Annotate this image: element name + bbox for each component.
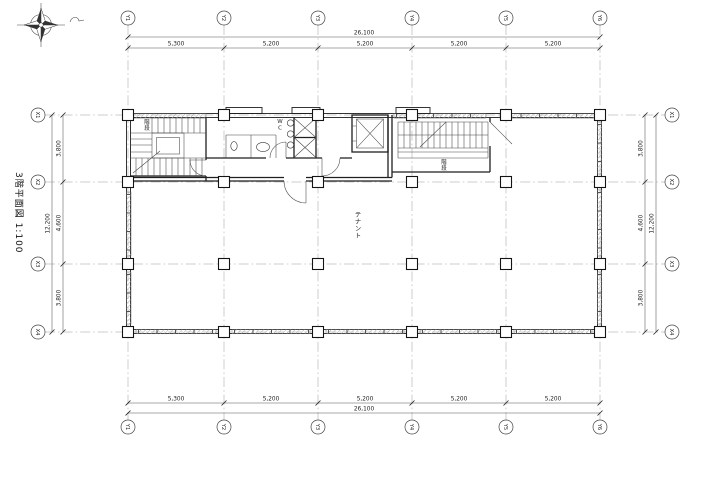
window-bands: [127, 114, 602, 334]
drawing-sheet: 3階平面図 1:100: [0, 0, 704, 500]
stair1-door: [190, 160, 206, 176]
north-compass-icon: [17, 3, 84, 47]
floor-plan-canvas: 3階平面図 1:100: [0, 0, 704, 500]
urinal-icon: [287, 120, 293, 126]
dim-top-total: 26,100: [354, 31, 375, 37]
structural-column: [407, 327, 418, 338]
grid-bubble-label: X4: [34, 329, 40, 337]
structural-column: [313, 110, 324, 121]
wc-door: [270, 142, 286, 158]
grid-bubble-label: Y1: [124, 14, 130, 21]
grid-bubble-label: Y3: [314, 14, 320, 21]
grid-bubble-label: Y4: [408, 423, 414, 431]
grid-bubble-label: Y4: [408, 14, 414, 22]
dim-bottom-total: 26,100: [354, 407, 375, 413]
grid-bubble-label: Y5: [502, 423, 508, 430]
grid-bubble-label: Y1: [124, 423, 130, 430]
grid-bubble-label: X2: [34, 179, 40, 186]
dim-right-segment: 3,800: [639, 140, 645, 157]
structural-column: [595, 259, 606, 270]
grid-bubble-label: X4: [668, 329, 674, 337]
dim-left-segment: 3,800: [57, 289, 63, 306]
wc-fixtures: [226, 120, 294, 158]
bench-mark-icon: [70, 17, 84, 22]
grid-bubble-label: Y5: [502, 14, 508, 21]
structural-column: [595, 110, 606, 121]
structural-column: [313, 177, 324, 188]
urinal-icon: [287, 131, 293, 137]
dim-left-segment: 3,800: [57, 140, 63, 157]
stair2: [398, 122, 488, 158]
grid-bubble-label: Y6: [596, 14, 602, 21]
structural-column: [501, 177, 512, 188]
tenant-door: [284, 181, 306, 203]
grid-bubble-label: X1: [34, 112, 40, 119]
dim-top-segment: 5,200: [263, 42, 280, 48]
structural-column: [595, 177, 606, 188]
compass-star: [24, 8, 58, 42]
wall-protrusions: [226, 108, 430, 114]
toilet-icon: [231, 142, 237, 151]
structural-column: [407, 110, 418, 121]
grid-bubble-label: X2: [668, 179, 674, 186]
dim-top-segment: 5,200: [357, 42, 374, 48]
dim-top-segment: 5,200: [451, 42, 468, 48]
grid-bubble-label: Y2: [220, 14, 226, 21]
ev-hall-door: [322, 158, 340, 176]
structural-column: [219, 327, 230, 338]
doors: [190, 122, 512, 203]
structural-column: [123, 259, 134, 270]
tenant-label: テナント: [353, 211, 361, 239]
dim-right-segment: 4,600: [639, 214, 645, 231]
building-walls: [127, 108, 602, 334]
structural-column: [501, 259, 512, 270]
stair2-door: [490, 122, 512, 144]
structural-column: [219, 110, 230, 121]
stair2-label: 階段: [440, 158, 447, 172]
structural-column: [595, 327, 606, 338]
structural-column: [123, 177, 134, 188]
dim-bottom-segment: 5,200: [451, 397, 468, 403]
dim-bottom-segment: 5,200: [263, 397, 280, 403]
wc-label: WC: [277, 119, 283, 132]
dim-bottom-segment: 5,300: [168, 397, 185, 403]
structural-column: [313, 327, 324, 338]
structural-column: [123, 110, 134, 121]
structural-column: [219, 259, 230, 270]
stair1: [130, 118, 206, 176]
dim-bottom-segment: 5,200: [357, 397, 374, 403]
dim-left-total: 12,200: [46, 213, 52, 234]
grid-bubble-label: X3: [34, 261, 40, 268]
stair1-label: 階段: [143, 118, 150, 132]
dim-right-total: 12,200: [650, 213, 656, 234]
grid-bubble-label: Y6: [596, 423, 602, 430]
structural-column: [219, 177, 230, 188]
elevator: [352, 115, 388, 152]
dim-bottom-segment: 5,200: [545, 397, 562, 403]
grid-bubble-label: X3: [668, 261, 674, 268]
elevator-x-symbol: [357, 119, 384, 148]
structural-column: [407, 177, 418, 188]
drawing-title: 3階平面図 1:100: [13, 172, 24, 254]
structural-column: [407, 259, 418, 270]
dim-top-segment: 5,200: [545, 42, 562, 48]
structural-column: [501, 110, 512, 121]
structural-column: [313, 259, 324, 270]
grid-bubble-label: Y2: [220, 423, 226, 430]
structural-column: [501, 327, 512, 338]
structural-column: [123, 327, 134, 338]
dim-right-segment: 3,800: [639, 289, 645, 306]
toilet-icon: [257, 142, 270, 151]
grid-bubble-label: X1: [668, 112, 674, 119]
room-labels: 階段 WC 階段 テナント: [143, 118, 447, 239]
dim-left-segment: 4,600: [57, 214, 63, 231]
dim-top-segment: 5,300: [168, 42, 185, 48]
grid-bubble-label: Y3: [314, 423, 320, 430]
urinal-icon: [287, 142, 293, 148]
